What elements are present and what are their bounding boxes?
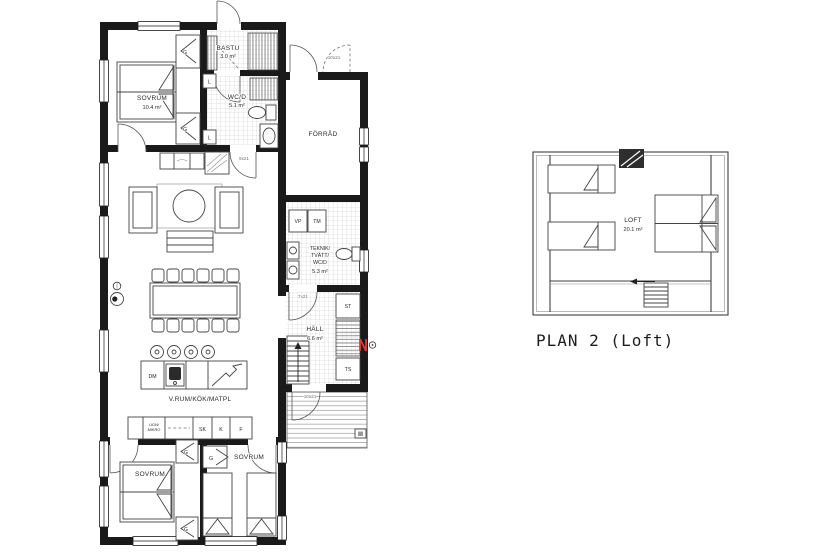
wardrobe-label: G	[184, 527, 188, 533]
fridge-label: K	[219, 427, 223, 433]
sauna-bench	[207, 36, 217, 70]
linen-closet: L	[203, 74, 216, 88]
washbasin	[287, 242, 299, 259]
dining-set	[150, 269, 240, 332]
deck	[287, 392, 367, 448]
cabinet-label: ST	[345, 304, 352, 310]
floor-drain	[287, 261, 299, 279]
washbasin	[260, 124, 278, 148]
window	[100, 330, 109, 372]
staircase	[630, 279, 668, 308]
oven-label-line2: MIKRO	[148, 427, 161, 432]
window	[100, 60, 109, 102]
tall-cabinet: ST	[336, 294, 360, 318]
room-sovrum-se: G SOVRUM	[203, 446, 276, 536]
room-sovrum-nw: G G SOVRUM 10.4 m²	[117, 35, 200, 144]
linen-closet: L	[203, 130, 216, 144]
room-forrad: FÖRRÅD 10x21	[309, 55, 341, 138]
bed-double	[655, 195, 718, 252]
armchair	[129, 187, 157, 233]
room-label: HÄLL	[306, 325, 323, 333]
bar-stools	[151, 346, 215, 359]
room-area: 6.6 m²	[307, 336, 323, 342]
wardrobe-label: G	[183, 50, 187, 56]
window	[360, 147, 369, 162]
window	[133, 537, 178, 546]
wardrobe-label: G	[183, 127, 187, 133]
sideboard	[160, 153, 204, 169]
room-label-line3: WC/D	[313, 260, 327, 266]
heat-pump-label: VP	[295, 219, 302, 225]
shelf-unit	[205, 152, 229, 174]
plan2-caption: PLAN 2 (Loft)	[536, 331, 674, 350]
floor-plan-drawing: G G SOVRUM 10.4 m² BASTU 3.0 m²	[0, 0, 831, 555]
cabinet-label: SK	[199, 427, 206, 433]
room-area: 3.0 m²	[220, 54, 236, 60]
freezer-label: F	[239, 427, 242, 433]
window	[100, 486, 109, 527]
room-area: 10.4 m²	[143, 105, 162, 111]
armchair	[215, 187, 243, 233]
electrical-symbol	[111, 282, 124, 305]
window	[100, 216, 109, 258]
window	[360, 128, 369, 145]
room-label: LOFT	[624, 217, 642, 224]
window	[100, 163, 109, 206]
drying-cabinet: TS	[336, 358, 360, 380]
window	[360, 250, 369, 272]
exterior-symbol	[369, 342, 375, 348]
bed-double	[117, 62, 176, 122]
bed-single	[203, 473, 232, 536]
room-label-line2: TVÄTT/	[311, 252, 329, 259]
closet-label: L	[208, 80, 211, 86]
plan2: LOFT 20.1 m² PLAN 2 (Loft)	[533, 149, 728, 350]
door-mark: 9x21	[239, 156, 249, 161]
washing-machine-label: TM	[313, 219, 321, 225]
room-sovrum-sw: G G SOVRUM	[120, 440, 198, 540]
door-swing	[118, 124, 146, 152]
wardrobe: G	[176, 440, 198, 463]
door-mark: 7x21	[298, 294, 308, 299]
room-label: SOVRUM	[137, 95, 167, 102]
room-area: 20.1 m²	[624, 227, 643, 233]
sauna-bench	[248, 33, 278, 70]
room-vrum: DM V.RUM/KÖK/MATPL UGN/ MIKRO SK K F	[111, 152, 253, 439]
door-mark: 10x21	[328, 55, 341, 60]
wardrobe: G	[176, 517, 198, 540]
window	[205, 537, 257, 546]
closet-label: L	[208, 136, 211, 142]
bed-single	[548, 222, 615, 250]
door-swing	[217, 1, 240, 24]
room-label: SOVRUM	[234, 454, 264, 461]
wardrobe-label: G	[209, 456, 213, 462]
wardrobe-label: G	[184, 450, 188, 456]
room-label: V.RUM/KÖK/MATPL	[169, 395, 232, 403]
deck-footing-core	[358, 432, 363, 437]
window	[278, 442, 287, 463]
wardrobe: G	[176, 35, 200, 68]
door-mark: 10x21	[304, 394, 317, 399]
door-swing	[290, 45, 350, 72]
wardrobe: G	[176, 113, 200, 144]
window	[278, 516, 287, 540]
window	[100, 441, 109, 477]
window	[138, 22, 180, 31]
room-label: WC/D	[228, 94, 246, 101]
room-label: SOVRUM	[135, 471, 165, 478]
bed-single	[548, 165, 615, 193]
room-label: FÖRRÅD	[309, 129, 338, 138]
kitchen-island: DM	[141, 346, 247, 390]
room-area: 5.1 m²	[229, 103, 245, 109]
toilet	[336, 247, 360, 261]
room-area: 5.3 m²	[312, 269, 328, 275]
hall-closet	[336, 320, 360, 356]
sofa-group	[129, 184, 243, 252]
kitchen-cabinet-row: UGN/ MIKRO SK K F	[128, 417, 252, 439]
floor-plan-page: G G SOVRUM 10.4 m² BASTU 3.0 m²	[0, 0, 831, 555]
room-label: BASTU	[217, 45, 240, 52]
heat-pump: VP	[289, 210, 307, 232]
plan1: G G SOVRUM 10.4 m² BASTU 3.0 m²	[100, 1, 376, 545]
washing-machine: TM	[308, 210, 326, 232]
chimney	[619, 149, 644, 168]
coffee-bench	[167, 231, 213, 252]
round-table	[173, 190, 205, 222]
dishwasher-label: DM	[148, 374, 156, 380]
shower	[250, 78, 278, 100]
bed-single	[247, 473, 276, 536]
room-label-line1: TEKNIK/	[310, 246, 331, 252]
wardrobe: G	[203, 446, 228, 468]
staircase	[287, 336, 309, 384]
cabinet-label: TS	[345, 367, 352, 373]
